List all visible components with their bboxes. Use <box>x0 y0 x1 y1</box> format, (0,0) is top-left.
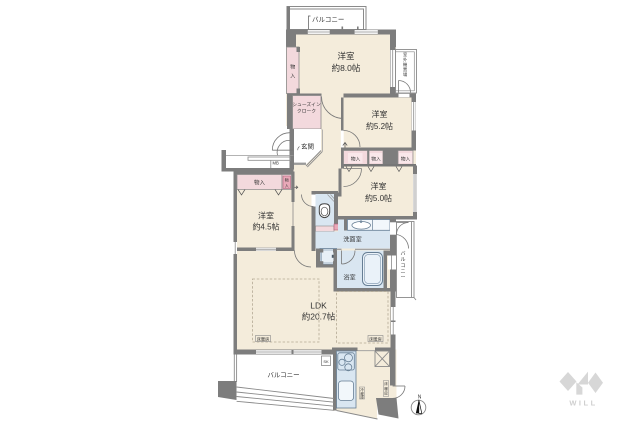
svg-text:物入: 物入 <box>351 156 361 163</box>
svg-text:入: 入 <box>285 183 289 188</box>
svg-text:物入: 物入 <box>371 156 381 163</box>
svg-text:MB: MB <box>273 160 279 165</box>
svg-text:物入: 物入 <box>401 156 411 163</box>
svg-text:WILL: WILL <box>569 399 597 408</box>
svg-text:ー: ー <box>401 275 406 281</box>
svg-text:物: 物 <box>285 177 289 183</box>
svg-text:洋室: 洋室 <box>337 51 355 61</box>
svg-text:房: 房 <box>384 391 388 396</box>
svg-text:洋室: 洋室 <box>372 109 388 119</box>
svg-text:約4.5帖: 約4.5帖 <box>252 222 279 232</box>
svg-text:入: 入 <box>290 74 295 80</box>
svg-text:床: 床 <box>384 381 388 386</box>
svg-text:洗面室: 洗面室 <box>343 236 362 244</box>
svg-text:浴室: 浴室 <box>343 274 355 282</box>
svg-text:約8.0帖: 約8.0帖 <box>332 63 361 73</box>
svg-text:玄関: 玄関 <box>301 142 314 151</box>
svg-text:庫: 庫 <box>360 395 364 400</box>
svg-text:バルコニー: バルコニー <box>312 16 344 24</box>
svg-text:物: 物 <box>290 64 295 71</box>
svg-text:クローク: クローク <box>297 109 316 115</box>
svg-text:シューズイン: シューズイン <box>292 101 321 108</box>
svg-text:バルコニー: バルコニー <box>267 371 299 379</box>
svg-text:洋室: 洋室 <box>371 181 387 191</box>
svg-text:床暖房: 床暖房 <box>369 335 382 342</box>
svg-text:床暖房: 床暖房 <box>257 335 270 342</box>
svg-text:洋室: 洋室 <box>258 211 274 221</box>
svg-text:SK: SK <box>323 359 329 364</box>
svg-text:物入: 物入 <box>254 179 266 187</box>
svg-text:約5.2帖: 約5.2帖 <box>366 121 393 131</box>
svg-text:暖: 暖 <box>384 386 388 391</box>
svg-text:N: N <box>418 395 422 401</box>
svg-text:約5.0帖: 約5.0帖 <box>365 193 392 203</box>
